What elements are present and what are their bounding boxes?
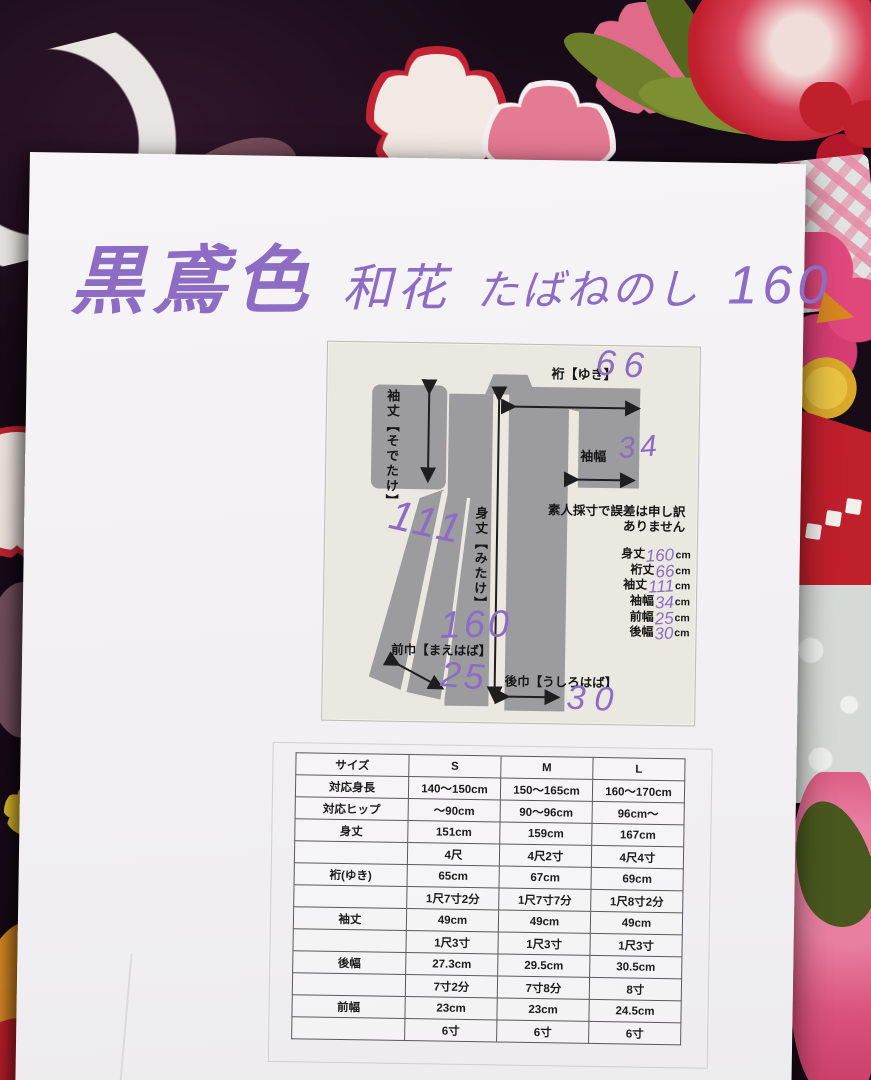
size-table-cell: 23cm	[405, 996, 497, 1019]
size-table-row-label: 袖丈	[293, 907, 406, 931]
paper-crease	[108, 954, 132, 1080]
sode-haba-arrow	[578, 480, 634, 481]
size-table-cell: 49cm	[406, 909, 498, 932]
size-table-cell: 1尺3寸	[406, 931, 498, 954]
mitake-arrow	[494, 400, 499, 700]
size-table-cell: 4尺4寸	[591, 845, 683, 868]
disclaimer-note: 素人採寸で誤差は申し訳 ありません	[515, 503, 685, 535]
size-table-cell: 167cm	[592, 823, 684, 846]
size-table-cell: 1尺7寸7分	[499, 888, 591, 911]
size-table-cell: 1尺7寸2分	[407, 887, 499, 910]
size-table-row-label	[294, 841, 407, 865]
size-table-row-label: 裄(ゆき)	[294, 863, 407, 887]
photo-of-kimono-size-sheet: 黒鳶色 和花 たばねのし 160	[0, 0, 871, 1080]
size-table-cell: 6寸	[497, 1020, 589, 1043]
size-table-cell: 150〜165cm	[500, 778, 592, 801]
size-table-cell: 7寸2分	[405, 975, 497, 998]
measurement-list: 身丈160cm裄丈66cm袖丈111cm袖幅34cm前幅25cm後幅30cm	[569, 542, 690, 638]
size-table-cell: 23cm	[497, 998, 589, 1021]
size-table-cell: 96cm〜	[592, 801, 684, 824]
size-table-cell: 1尺3寸	[498, 932, 590, 955]
size-table-header: S	[409, 755, 501, 778]
size-table-header: サイズ	[296, 753, 409, 777]
measurement-line: 前幅25cm	[570, 604, 690, 622]
size-table-cell: 29.5cm	[498, 954, 590, 977]
size-table-cell: 4尺2寸	[499, 844, 591, 867]
measurement-line: 後幅30cm	[569, 620, 689, 638]
size-table-cell: 140〜150cm	[408, 777, 500, 800]
fabric-white-square	[805, 523, 822, 540]
measurement-line: 身丈160cm	[571, 542, 691, 560]
handwritten-ushiro-haba-value: 30	[566, 681, 623, 718]
fabric-white-square	[845, 498, 862, 515]
handwritten-yuki-value: 66	[595, 344, 653, 384]
size-table-row-label: 対応身長	[295, 775, 408, 799]
size-table-cell: 1尺3寸	[590, 933, 682, 956]
size-table-row-label	[294, 885, 407, 909]
size-table: サイズSML 対応身長140〜150cm150〜165cm160〜170cm対応…	[291, 752, 685, 1045]
size-table-cell: 160〜170cm	[592, 779, 684, 802]
measurement-line: 袖丈111cm	[570, 573, 690, 591]
handwritten-mitake-value: 160	[439, 605, 512, 644]
handwritten-pattern2: たばねのし	[476, 256, 701, 318]
size-table-cell: 〜90cm	[408, 799, 500, 822]
size-table-cell: 27.3cm	[406, 953, 498, 976]
size-table-row-label	[292, 973, 405, 997]
size-sheet-paper: 黒鳶色 和花 たばねのし 160	[14, 152, 806, 1080]
measurement-unit: cm	[674, 628, 689, 640]
handwritten-title: 黒鳶色 和花 たばねのし 160	[70, 218, 771, 329]
sode-take-arrow	[428, 393, 429, 481]
size-table-row-label: 身丈	[295, 819, 408, 843]
size-table-cell: 65cm	[407, 865, 499, 888]
fabric-white-square	[825, 510, 842, 527]
size-table-cell: 49cm	[590, 911, 682, 934]
size-table-cell: 159cm	[500, 822, 592, 845]
size-table-cell: 90〜96cm	[500, 800, 592, 823]
size-table-cell: 30.5cm	[590, 955, 682, 978]
size-table-cell: 24.5cm	[589, 999, 681, 1022]
measurement-label: 後幅	[629, 625, 653, 639]
size-table-row-label: 対応ヒップ	[295, 797, 408, 821]
back-panel-shape	[504, 395, 569, 712]
size-table-cell: 7寸8分	[497, 976, 589, 999]
disclaimer-line2: ありません	[515, 517, 685, 534]
handwritten-size: 160	[727, 254, 832, 317]
size-table-cell: 6寸	[405, 1018, 497, 1041]
size-table-cell: 49cm	[498, 910, 590, 933]
handwritten-pattern: 和花	[342, 248, 450, 321]
mitake-label: 身丈【みたけ】	[470, 506, 491, 616]
size-table-cell: 151cm	[408, 821, 500, 844]
size-table-header: L	[593, 757, 685, 780]
size-table-cell: 67cm	[499, 866, 591, 889]
size-table-header: M	[501, 756, 593, 779]
size-table-row-label	[292, 1017, 405, 1041]
handwritten-color-name: 黒鳶色	[70, 221, 317, 329]
handwritten-sode-haba-value: 34	[617, 431, 662, 464]
measurement-line: 裄丈66cm	[570, 557, 690, 575]
measurement-line: 袖幅34cm	[570, 589, 690, 607]
size-table-cell: 4尺	[407, 843, 499, 866]
sode-haba-label: 袖幅	[580, 446, 606, 465]
measurement-value-handwritten: 30	[654, 624, 674, 645]
size-table-row-label: 後幅	[293, 951, 406, 975]
size-table-cell: 6寸	[589, 1021, 681, 1044]
ushiro-haba-arrow	[509, 697, 559, 698]
size-table-cell: 1尺8寸2分	[591, 889, 683, 912]
size-table-row-label	[293, 929, 406, 953]
size-table-cell: 8寸	[589, 977, 681, 1000]
handwritten-mae-haba-value: 25	[439, 656, 488, 696]
size-table-row-label: 前幅	[292, 995, 405, 1019]
kimono-measurement-diagram: 袖丈【そでたけ】 裄【ゆき】 袖幅 身丈【みたけ】 前巾【まえはば】 後巾【うし…	[321, 341, 701, 727]
size-table-cell: 69cm	[591, 867, 683, 890]
